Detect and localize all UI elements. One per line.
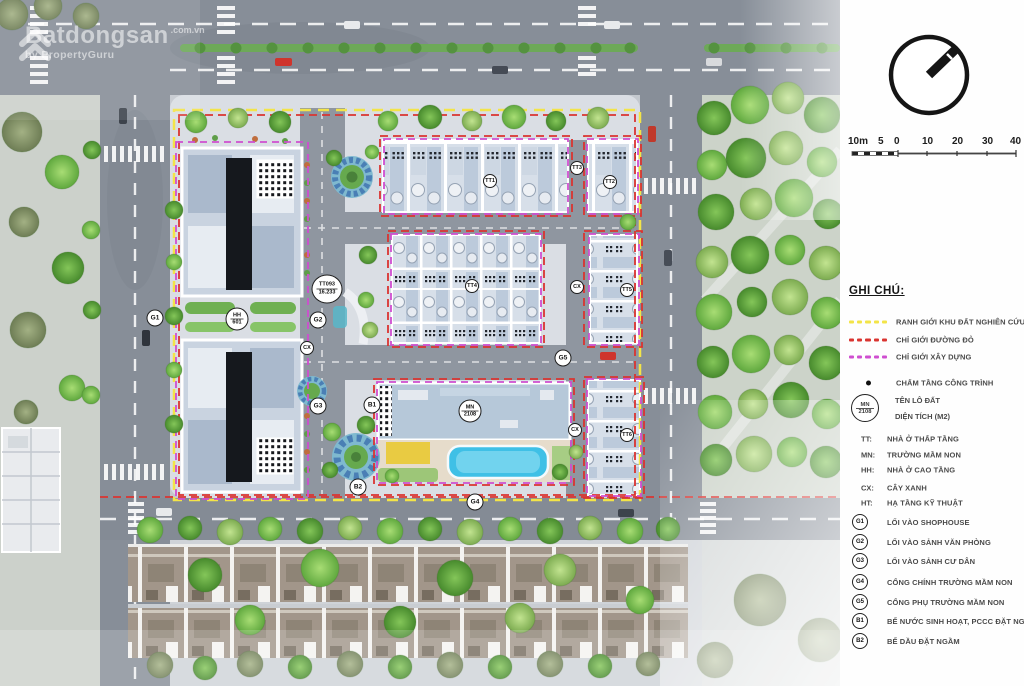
legend-label: BỂ NƯỚC SINH HOẠT, PCCC ĐẶT NGẦM — [887, 617, 1024, 626]
lot-code: TT093 — [319, 282, 335, 289]
black-dot-swatch — [849, 381, 887, 386]
abbr-key: HH: — [861, 466, 887, 475]
legend-item-g3: G3 LỐI VÀO SẢNH CƯ DÂN — [849, 553, 975, 569]
gate-marker-g5: G5 — [555, 350, 572, 367]
legend-item-cx: CX: CÂY XANH — [849, 484, 927, 493]
lot-sample-circle: MN 2108 — [851, 394, 879, 422]
legend-item-ht: HT: HẠ TẦNG KỸ THUẬT — [849, 499, 963, 508]
green-marker-cx-c: CX — [568, 423, 582, 437]
masterplan-screenshot: Batdongsan.com.vn by PropertyGuru G1 G2 … — [0, 0, 1024, 686]
tank-marker-b2: B2 — [350, 479, 367, 496]
site-plan-map: Batdongsan.com.vn by PropertyGuru G1 G2 … — [0, 0, 840, 686]
scale-label: 30 — [982, 136, 993, 147]
legend-item-g2: G2 LỐI VÀO SẢNH VĂN PHÒNG — [849, 534, 991, 550]
gate-circle-icon: G1 — [852, 514, 868, 530]
legend-panel: 10m 5 0 10 20 30 40 GHI CHÚ: RANH GIỚI — [840, 0, 1024, 686]
legend-label: BỂ DẦU ĐẶT NGẦM — [887, 637, 960, 646]
legend-label: CỔNG CHÍNH TRƯỜNG MẦM NON — [887, 578, 1013, 587]
scale-label: 40 — [1010, 136, 1021, 147]
lot-marker-tt5: TT5 — [620, 283, 634, 297]
scale-label: 5 — [878, 136, 884, 147]
legend-label: RANH GIỚI KHU ĐẤT NGHIÊN CỨU — [896, 318, 1024, 327]
legend-label: CÂY XANH — [887, 484, 927, 493]
lot-marker-tt1: TT1 — [483, 174, 497, 188]
gate-marker-g4: G4 — [467, 494, 484, 511]
green-marker-cx-a: CX — [300, 341, 314, 355]
legend-label: TÊN LÔ ĐẤT — [895, 396, 950, 405]
scale-bar-labels: 10m 5 0 10 20 30 40 — [848, 136, 1024, 148]
lot-marker-tt093: TT093 16.233 — [312, 275, 343, 304]
gate-circle-icon: G3 — [852, 553, 868, 569]
scale-label: 10m — [848, 136, 868, 147]
tank-marker-b1: B1 — [364, 397, 381, 414]
lot-marker-tt3: TT3 — [570, 161, 584, 175]
red-dashed-line-swatch — [849, 339, 887, 342]
lot-marker-hh: HH 601 — [226, 308, 249, 331]
lot-marker-tt4: TT4 — [465, 279, 479, 293]
lot-marker-tt2: TT2 — [603, 175, 617, 189]
yellow-dashed-line-swatch — [849, 321, 887, 324]
legend-item-hh: HH: NHÀ Ở CAO TẦNG — [849, 466, 955, 475]
legend-item-floor-dot: CHẤM TẦNG CÔNG TRÌNH — [849, 379, 993, 388]
tank-circle-icon: B1 — [852, 613, 868, 629]
lot-area: 601 — [230, 319, 243, 326]
north-compass-icon — [886, 28, 972, 120]
legend-item-build-line: CHỈ GIỚI XÂY DỰNG — [849, 353, 971, 362]
abbr-key: TT: — [861, 435, 887, 444]
scale-label: 0 — [894, 136, 900, 147]
legend-item-study-boundary: RANH GIỚI KHU ĐẤT NGHIÊN CỨU — [849, 318, 1024, 327]
legend-label: HẠ TẦNG KỸ THUẬT — [887, 499, 963, 508]
legend-label: CHỈ GIỚI ĐƯỜNG ĐỎ — [896, 336, 974, 345]
gate-marker-g2: G2 — [310, 312, 327, 329]
lot-area: 2108 — [462, 411, 478, 418]
legend-label: DIỆN TÍCH (M2) — [895, 412, 950, 421]
scale-label: 20 — [952, 136, 963, 147]
legend-item-g4: G4 CỔNG CHÍNH TRƯỜNG MẦM NON — [849, 574, 1013, 590]
legend-title: GHI CHÚ: — [849, 285, 905, 297]
legend-label: LỐI VÀO SẢNH CƯ DÂN — [887, 557, 975, 566]
legend-label: CHẤM TẦNG CÔNG TRÌNH — [896, 379, 993, 388]
legend-label: NHÀ Ở THẤP TẦNG — [887, 435, 959, 444]
legend-label: CHỈ GIỚI XÂY DỰNG — [896, 353, 971, 362]
scale-bar — [848, 149, 1024, 159]
legend-item-g5: G5 CỔNG PHỤ TRƯỜNG MẦM NON — [849, 594, 1004, 610]
lot-marker-mn: MN 2108 — [459, 400, 482, 423]
legend-label: CỔNG PHỤ TRƯỜNG MẦM NON — [887, 598, 1004, 607]
legend-label: LỐI VÀO SẢNH VĂN PHÒNG — [887, 538, 991, 547]
green-marker-cx-b: CX — [570, 280, 584, 294]
legend-label: LỐI VÀO SHOPHOUSE — [887, 518, 970, 527]
legend-item-b1: B1 BỂ NƯỚC SINH HOẠT, PCCC ĐẶT NGẦM — [849, 613, 1024, 629]
legend-label: NHÀ Ở CAO TẦNG — [887, 466, 955, 475]
scale-label: 10 — [922, 136, 933, 147]
legend-item-b2: B2 BỂ DẦU ĐẶT NGẦM — [849, 633, 960, 649]
gate-marker-g1: G1 — [147, 310, 164, 327]
gate-marker-g3: G3 — [310, 398, 327, 415]
lot-sample-area: 2108 — [856, 408, 875, 415]
legend-item-tt: TT: NHÀ Ở THẤP TẦNG — [849, 435, 959, 444]
legend-item-mn: MN: TRƯỜNG MẦM NON — [849, 451, 961, 460]
legend-label: TRƯỜNG MẦM NON — [887, 451, 961, 460]
magenta-dashed-line-swatch — [849, 356, 887, 359]
gate-circle-icon: G5 — [852, 594, 868, 610]
gate-circle-icon: G4 — [852, 574, 868, 590]
abbr-key: HT: — [861, 499, 887, 508]
gate-circle-icon: G2 — [852, 534, 868, 550]
lot-area: 16.233 — [317, 289, 338, 297]
legend-item-red-line: CHỈ GIỚI ĐƯỜNG ĐỎ — [849, 336, 974, 345]
legend-item-g1: G1 LỐI VÀO SHOPHOUSE — [849, 514, 970, 530]
tank-circle-icon: B2 — [852, 633, 868, 649]
legend-lot-sample: MN 2108 TÊN LÔ ĐẤT DIỆN TÍCH (M2) — [851, 394, 950, 422]
site-plan-art — [0, 0, 840, 686]
abbr-key: CX: — [861, 484, 887, 493]
lot-marker-tt6: TT6 — [620, 428, 634, 442]
abbr-key: MN: — [861, 451, 887, 460]
